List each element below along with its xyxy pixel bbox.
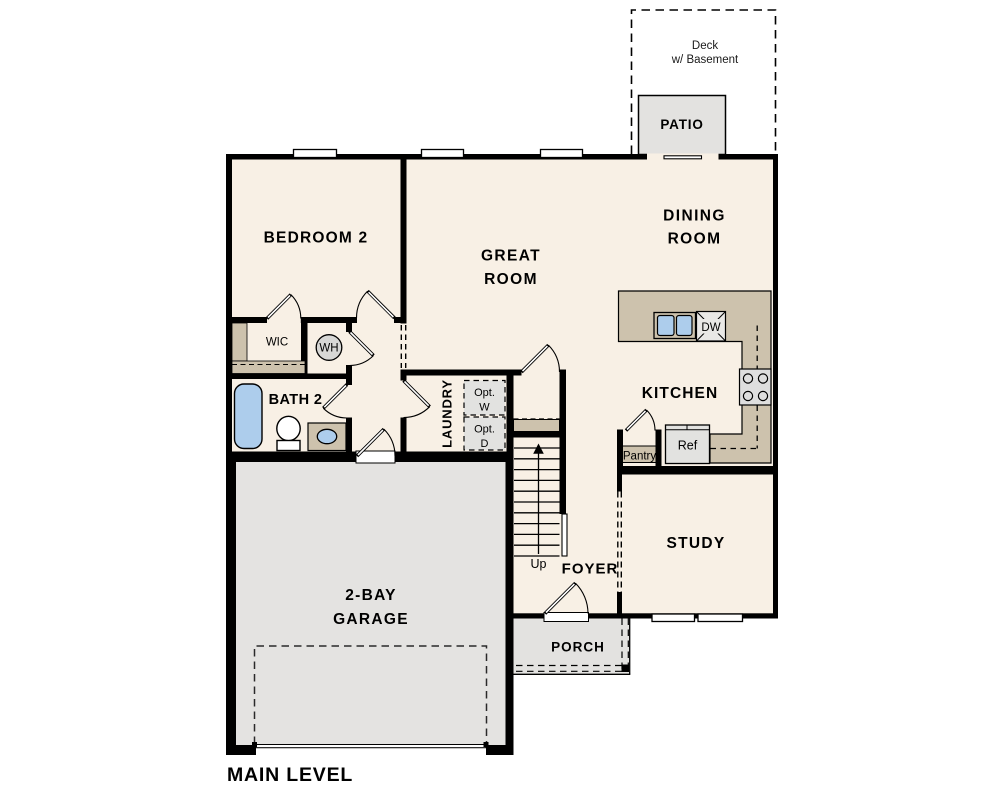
svg-text:Pantry: Pantry xyxy=(623,451,656,463)
svg-text:GARAGE: GARAGE xyxy=(333,611,409,628)
svg-text:WH: WH xyxy=(319,343,338,355)
svg-text:Up: Up xyxy=(531,557,547,571)
svg-text:STUDY: STUDY xyxy=(666,535,725,552)
svg-text:DW: DW xyxy=(701,322,720,334)
svg-text:BEDROOM 2: BEDROOM 2 xyxy=(264,230,369,247)
svg-text:ROOM: ROOM xyxy=(484,271,538,288)
svg-text:Ref: Ref xyxy=(678,439,698,453)
svg-text:Opt.: Opt. xyxy=(474,387,495,399)
svg-text:BATH 2: BATH 2 xyxy=(269,392,323,408)
svg-text:Opt.: Opt. xyxy=(474,424,495,436)
svg-text:ROOM: ROOM xyxy=(668,231,722,248)
svg-text:Deck: Deck xyxy=(692,40,718,52)
svg-text:LAUNDRY: LAUNDRY xyxy=(440,379,455,448)
svg-text:MAIN LEVEL: MAIN LEVEL xyxy=(227,764,353,786)
svg-text:PATIO: PATIO xyxy=(660,117,703,132)
svg-text:WIC: WIC xyxy=(266,337,288,349)
svg-text:KITCHEN: KITCHEN xyxy=(642,385,719,402)
svg-text:2-BAY: 2-BAY xyxy=(345,587,397,604)
svg-text:w/ Basement: w/ Basement xyxy=(671,54,739,66)
svg-text:PORCH: PORCH xyxy=(551,640,605,655)
svg-text:DINING: DINING xyxy=(663,208,726,225)
svg-text:D: D xyxy=(481,438,489,450)
svg-text:FOYER: FOYER xyxy=(562,561,619,578)
svg-text:W: W xyxy=(479,402,490,414)
svg-text:GREAT: GREAT xyxy=(481,248,541,265)
